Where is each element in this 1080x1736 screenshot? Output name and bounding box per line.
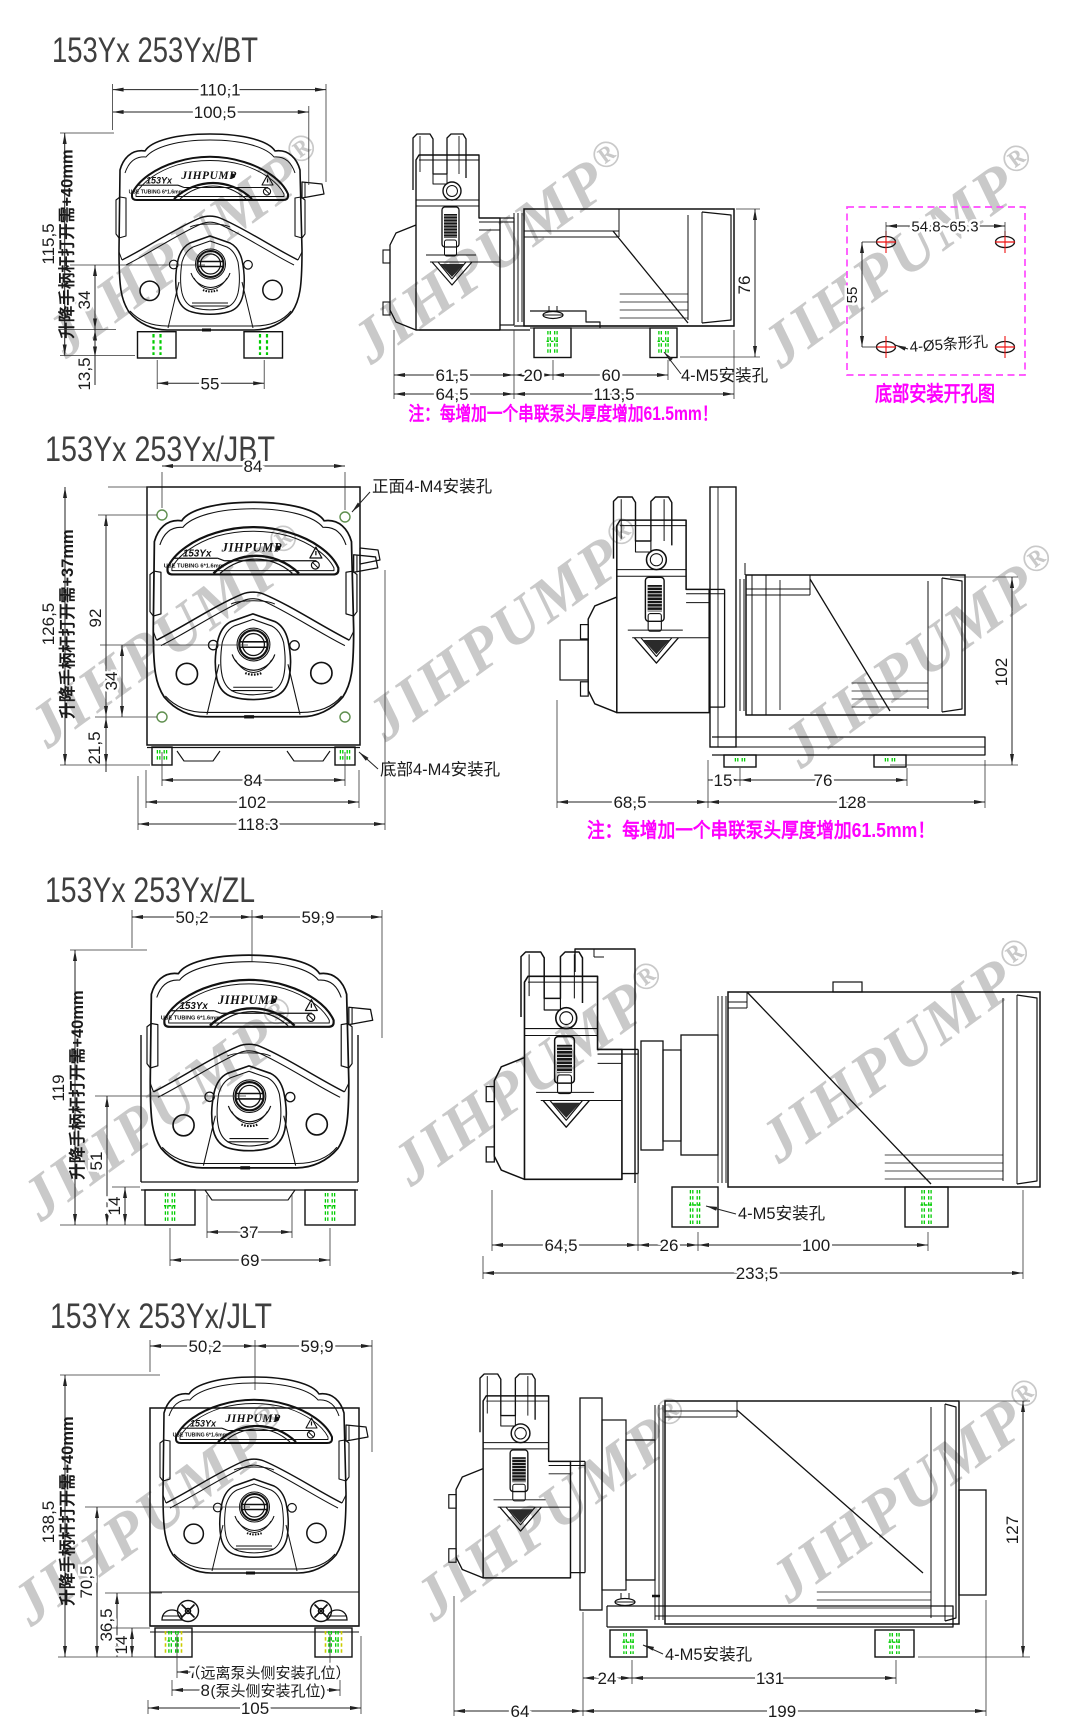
svg-text:14: 14 <box>112 1636 131 1655</box>
svg-text:102: 102 <box>238 793 266 812</box>
svg-text:USE TUBING 6*1.6mm: USE TUBING 6*1.6mm <box>173 1433 228 1439</box>
svg-text:102: 102 <box>992 658 1011 686</box>
svg-text:51: 51 <box>87 1152 106 1171</box>
svg-text:50,2: 50,2 <box>175 908 208 927</box>
svg-text:153Yx 253Yx/ZL: 153Yx 253Yx/ZL <box>45 871 255 910</box>
svg-text:153Yx: 153Yx <box>190 1419 217 1429</box>
svg-text:14: 14 <box>105 1197 124 1216</box>
svg-text:59,9: 59,9 <box>301 908 334 927</box>
svg-text:55: 55 <box>201 374 220 393</box>
svg-text:131: 131 <box>756 1669 784 1688</box>
svg-text:127: 127 <box>1003 1516 1022 1544</box>
svg-text:128: 128 <box>838 793 866 812</box>
svg-text:64: 64 <box>511 1702 530 1721</box>
svg-text:4-M5安装孔: 4-M5安装孔 <box>665 1645 752 1664</box>
svg-text:34: 34 <box>75 291 94 310</box>
svg-text:100: 100 <box>802 1236 830 1255</box>
svg-text:153Yx 253Yx/BT: 153Yx 253Yx/BT <box>52 31 258 70</box>
svg-text:153Yx 253Yx/JLT: 153Yx 253Yx/JLT <box>50 1297 272 1336</box>
svg-text:55: 55 <box>844 287 861 304</box>
svg-text:26: 26 <box>660 1236 679 1255</box>
svg-text:正面4-M4安装孔: 正面4-M4安装孔 <box>372 477 492 496</box>
svg-text:100,5: 100,5 <box>194 103 237 122</box>
svg-text:JIHPUMP: JIHPUMP <box>180 170 237 182</box>
svg-text:64,5: 64,5 <box>544 1236 577 1255</box>
svg-text:注：每增加一个串联泵头厚度增加61.5mm！: 注：每增加一个串联泵头厚度增加61.5mm！ <box>409 402 718 425</box>
svg-text:50,2: 50,2 <box>188 1337 221 1356</box>
svg-text:118.3: 118.3 <box>237 815 278 834</box>
svg-text:15: 15 <box>714 771 733 790</box>
svg-text:20: 20 <box>524 366 543 385</box>
svg-text:69: 69 <box>241 1251 260 1270</box>
svg-text:（远离泵头侧安装孔位）: （远离泵头侧安装孔位） <box>185 1665 350 1682</box>
svg-text:126,5: 126,5 <box>39 603 58 646</box>
svg-text:113,5: 113,5 <box>593 385 634 404</box>
svg-text:升降手柄杆打开需+37mm: 升降手柄杆打开需+37mm <box>57 529 77 718</box>
svg-text:JIHPUMP: JIHPUMP <box>221 540 282 554</box>
svg-text:升降手柄杆打开需+40mm: 升降手柄杆打开需+40mm <box>57 149 77 338</box>
svg-text:USE TUBING 6*1.6mm: USE TUBING 6*1.6mm <box>161 1016 220 1022</box>
svg-text:34: 34 <box>102 672 121 691</box>
svg-text:JIHPUMP: JIHPUMP <box>217 993 278 1007</box>
svg-text:92: 92 <box>86 609 105 628</box>
svg-text:153Yx 253Yx/JBT: 153Yx 253Yx/JBT <box>45 430 275 469</box>
svg-text:升降手柄杆打开需+40mm: 升降手柄杆打开需+40mm <box>57 1416 77 1605</box>
svg-text:110,1: 110,1 <box>199 81 240 100</box>
svg-text:升降手柄杆打开需+40mm: 升降手柄杆打开需+40mm <box>67 990 87 1179</box>
svg-text:138,5: 138,5 <box>39 1501 58 1544</box>
svg-text:61,5: 61,5 <box>435 366 468 385</box>
svg-text:4-M5安装孔: 4-M5安装孔 <box>738 1204 825 1223</box>
svg-text:(泵头侧安装孔位): (泵头侧安装孔位) <box>211 1683 326 1700</box>
svg-text:注：每增加一个串联泵头厚度增加61.5mm！: 注：每增加一个串联泵头厚度增加61.5mm！ <box>587 818 935 842</box>
svg-text:68,5: 68,5 <box>613 793 646 812</box>
svg-text:60: 60 <box>602 366 621 385</box>
svg-text:119: 119 <box>49 1074 68 1101</box>
svg-text:233,5: 233,5 <box>736 1264 779 1283</box>
svg-text:84: 84 <box>244 457 263 476</box>
svg-text:153Yx: 153Yx <box>146 176 173 186</box>
svg-text:USE TUBING 6*1.6mm: USE TUBING 6*1.6mm <box>164 563 224 569</box>
svg-text:54.8~65.3: 54.8~65.3 <box>911 218 978 235</box>
svg-text:70,5: 70,5 <box>77 1565 96 1598</box>
svg-text:105: 105 <box>241 1699 269 1718</box>
svg-text:21,5: 21,5 <box>85 731 104 764</box>
svg-text:84: 84 <box>244 771 263 790</box>
svg-text:59,9: 59,9 <box>300 1337 333 1356</box>
svg-text:24: 24 <box>598 1669 617 1688</box>
svg-text:13,5: 13,5 <box>75 357 94 390</box>
svg-text:199: 199 <box>768 1702 796 1721</box>
svg-text:76: 76 <box>735 276 754 295</box>
svg-text:底部4-M4安装孔: 底部4-M4安装孔 <box>380 760 500 779</box>
svg-text:USE TUBING 6*1.6mm: USE TUBING 6*1.6mm <box>129 190 184 196</box>
svg-text:115,5: 115,5 <box>39 223 58 264</box>
svg-text:76: 76 <box>814 771 833 790</box>
svg-text:37: 37 <box>240 1223 259 1242</box>
svg-text:4-M5安装孔: 4-M5安装孔 <box>681 366 768 385</box>
svg-text:64,5: 64,5 <box>435 385 468 404</box>
svg-text:JIHPUMP: JIHPUMP <box>224 1413 281 1425</box>
svg-text:底部安装开孔图: 底部安装开孔图 <box>875 382 995 406</box>
